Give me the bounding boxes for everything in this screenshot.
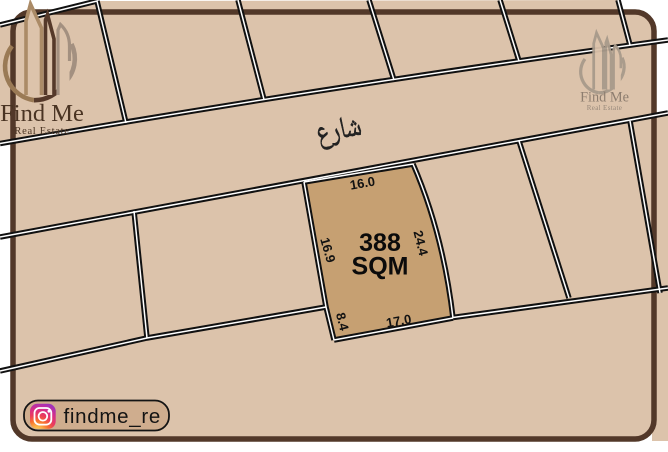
svg-text:Find Me: Find Me: [0, 100, 84, 127]
svg-text:Real Estate: Real Estate: [14, 126, 69, 137]
svg-text:Real Estate: Real Estate: [587, 104, 623, 112]
svg-text:SQM: SQM: [352, 253, 409, 281]
svg-text:findme_re: findme_re: [64, 405, 161, 428]
